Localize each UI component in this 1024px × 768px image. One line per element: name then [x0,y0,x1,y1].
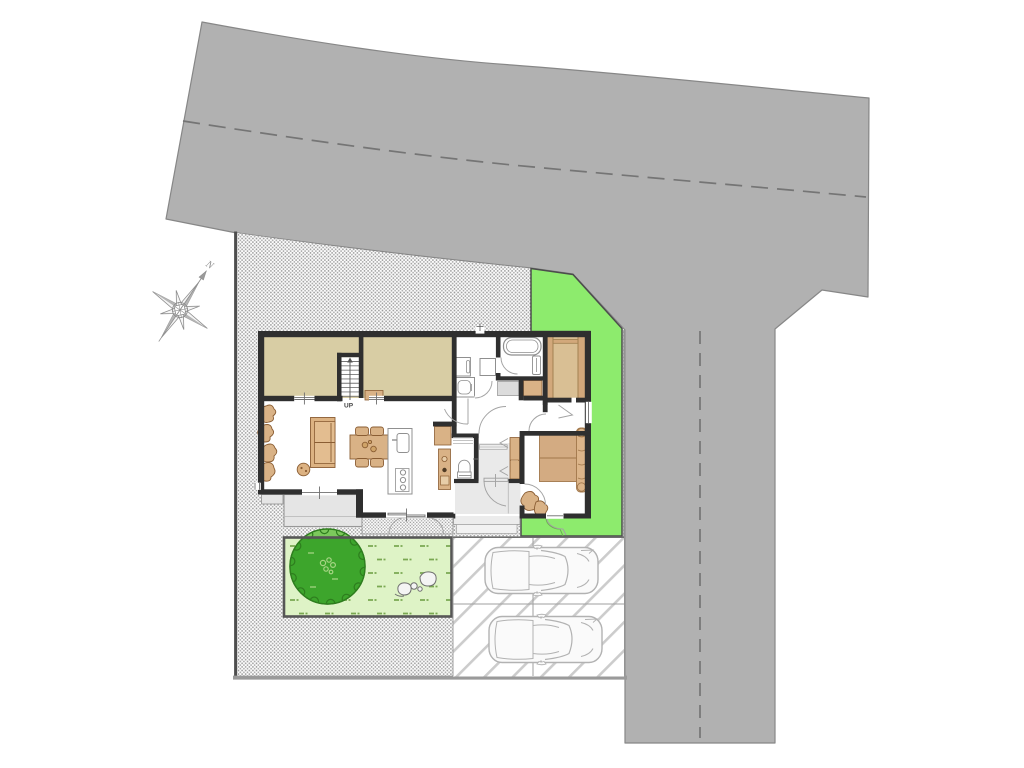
svg-text:N: N [203,258,217,272]
svg-text:UP: UP [344,403,354,410]
